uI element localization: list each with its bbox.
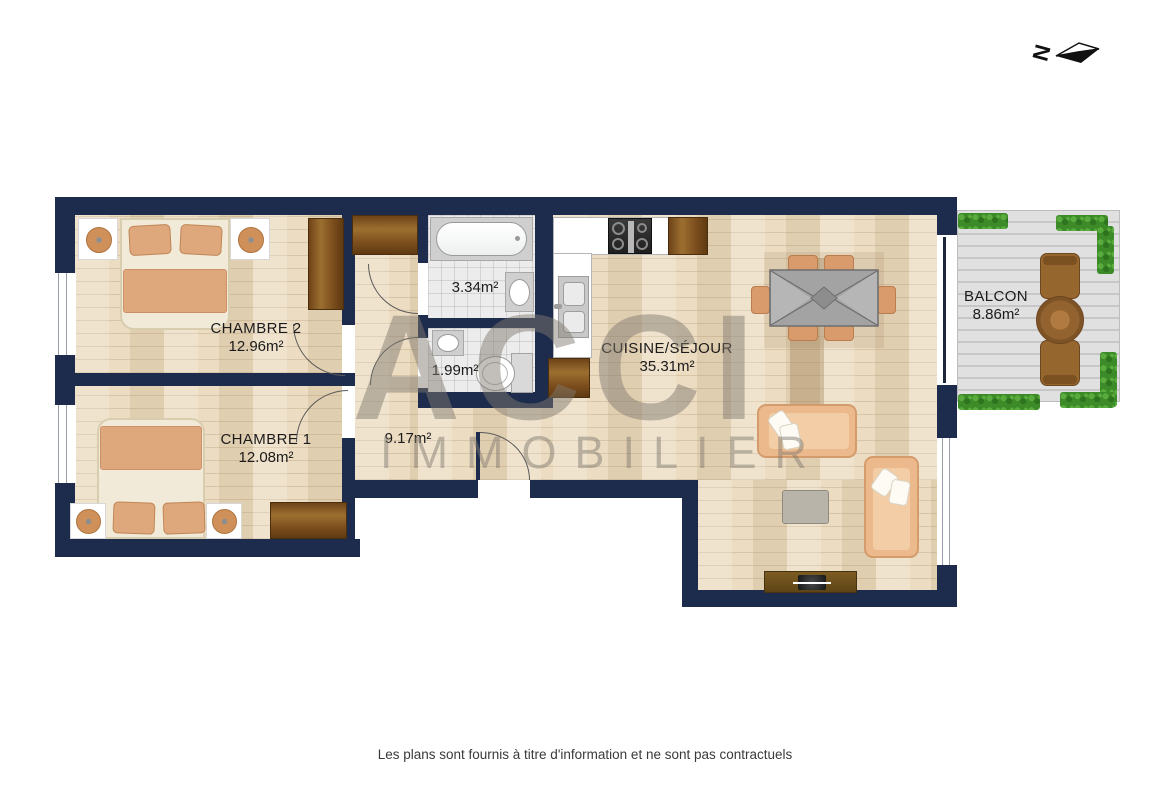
kitchen-cabinet-left <box>548 358 590 398</box>
wardrobe <box>308 218 344 310</box>
wall-right-1 <box>937 197 957 235</box>
wall-top <box>55 197 957 215</box>
tv-stand <box>764 571 857 593</box>
wall-hall-bottom-right <box>530 480 698 498</box>
room-name: BALCON <box>956 288 1036 306</box>
hedge-plant <box>1060 392 1115 408</box>
wall-sejour-left-step <box>682 498 698 607</box>
loveseat-sofa <box>757 404 857 458</box>
chambre1-window <box>51 405 76 483</box>
room-area: 12.96m² <box>163 338 349 356</box>
chambre2-label: CHAMBRE 2 12.96m² <box>163 320 349 355</box>
dining-chair <box>751 286 770 314</box>
wall-wc-bottom <box>418 392 553 408</box>
sink-basin <box>509 279 530 306</box>
bathtub <box>436 222 527 256</box>
balcony-chair-top <box>1040 253 1080 299</box>
floor-plan-page: CHAMBRE 2 12.96m² CHAMBRE 1 12.08m² 3.34… <box>0 0 1170 785</box>
hedge-plant <box>958 213 1008 229</box>
sink-basin <box>437 334 459 352</box>
balcon-label: BALCON 8.86m² <box>956 288 1036 323</box>
tv-soundbar <box>793 582 831 584</box>
room-area: 12.08m² <box>173 449 359 467</box>
balcony-sliding-door <box>937 235 957 385</box>
lamp-icon <box>212 509 237 534</box>
coffee-table <box>782 490 829 524</box>
pillow <box>162 501 205 534</box>
wall-right-3 <box>937 565 957 607</box>
room-name: CHAMBRE 2 <box>163 320 349 338</box>
north-letter: N <box>1027 42 1055 64</box>
nightstand <box>78 218 118 260</box>
pillow <box>112 501 155 534</box>
double-bed <box>120 218 230 330</box>
entrance-door-leaf <box>476 432 480 480</box>
balcony-round-table <box>1036 296 1084 344</box>
cooktop-control-strip <box>628 221 634 253</box>
chair-backrest <box>1043 375 1077 384</box>
cooktop <box>608 218 652 254</box>
hedge-plant <box>1097 226 1114 274</box>
kitchen-cabinet-top <box>668 217 708 255</box>
sejour-window <box>937 438 957 565</box>
sink-bowl <box>563 311 585 333</box>
wall-bath-wc-divider <box>428 318 535 328</box>
lamp-icon <box>238 227 264 253</box>
burner-icon <box>612 222 625 235</box>
burner-icon <box>637 223 647 233</box>
faucet-icon <box>554 304 562 309</box>
bed-blanket <box>123 269 227 313</box>
wall-right-2 <box>937 385 957 438</box>
sejour-label: CUISINE/SÉJOUR 35.31m² <box>597 340 737 375</box>
wall-bathroom-left-1 <box>418 215 428 263</box>
chair-backrest <box>1043 256 1077 265</box>
wardrobe <box>270 502 347 539</box>
hallway-label: 9.17m² <box>377 430 439 448</box>
chambre1-label: CHAMBRE 1 12.08m² <box>173 431 359 466</box>
burner-icon <box>612 238 624 250</box>
dining-table <box>769 269 879 327</box>
burner-icon <box>636 238 648 250</box>
room-area: 35.31m² <box>597 358 737 376</box>
room-area: 9.17m² <box>377 430 439 448</box>
room-area: 8.86m² <box>956 306 1036 324</box>
vertical-sofa <box>864 456 919 558</box>
lamp-icon <box>76 509 101 534</box>
wall-bedroom-divider <box>55 373 355 386</box>
pillow <box>179 224 223 256</box>
dining-chair <box>877 286 896 314</box>
wc-sink-counter <box>432 330 464 356</box>
balcony-chair-bottom <box>1040 340 1080 386</box>
hedge-plant <box>958 394 1040 410</box>
wall-bedrooms-bottom <box>55 539 360 557</box>
nightstand <box>206 503 242 539</box>
nightstand <box>230 218 270 260</box>
room-name: CUISINE/SÉJOUR <box>597 340 737 358</box>
wall-hall-bottom-left <box>347 480 478 498</box>
hallway-cabinet <box>352 215 418 255</box>
room-area: 1.99m² <box>422 362 488 380</box>
room-area: 3.34m² <box>440 279 510 297</box>
chambre2-window <box>51 273 76 355</box>
lamp-icon <box>86 227 112 253</box>
wc-label: 1.99m² <box>422 362 488 380</box>
kitchen-sink-unit <box>558 276 589 338</box>
footer-disclaimer: Les plans sont fournis à titre d'informa… <box>0 747 1170 762</box>
bathroom-label: 3.34m² <box>440 279 510 297</box>
sliding-door-leaf <box>943 237 946 383</box>
pillow <box>128 224 172 256</box>
bathtub-surround <box>430 217 533 261</box>
room-name: CHAMBRE 1 <box>173 431 359 449</box>
bathtub-drain-icon <box>515 236 520 241</box>
north-compass-icon: N <box>1020 33 1125 83</box>
sink-bowl <box>563 282 585 306</box>
wall-bathroom-left-2 <box>418 315 428 338</box>
nightstand <box>70 503 106 539</box>
